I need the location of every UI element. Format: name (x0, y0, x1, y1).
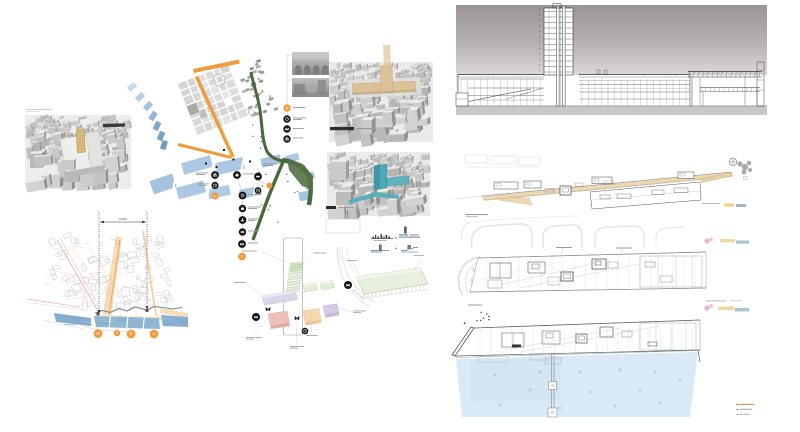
svg-text:◂: ◂ (539, 36, 540, 39)
svg-text:◂: ◂ (539, 58, 540, 61)
svg-text:◂: ◂ (539, 47, 540, 50)
svg-text:T: T (116, 332, 118, 336)
svg-text:◂: ◂ (539, 41, 540, 44)
svg-text:M: M (96, 331, 100, 336)
svg-text:◂: ◂ (539, 64, 540, 67)
svg-text:◂: ◂ (539, 69, 540, 72)
svg-text:◂: ◂ (539, 8, 540, 11)
svg-text:◂: ◂ (539, 52, 540, 55)
svg-text:V: V (153, 332, 156, 337)
svg-text:◂: ◂ (539, 19, 540, 22)
svg-text:◂: ◂ (539, 24, 540, 27)
svg-text:~: ~ (540, 359, 542, 363)
svg-text:◂: ◂ (539, 30, 540, 33)
svg-text:P: P (130, 332, 133, 337)
svg-text:◂: ◂ (539, 13, 540, 16)
svg-text:P: P (241, 255, 244, 259)
